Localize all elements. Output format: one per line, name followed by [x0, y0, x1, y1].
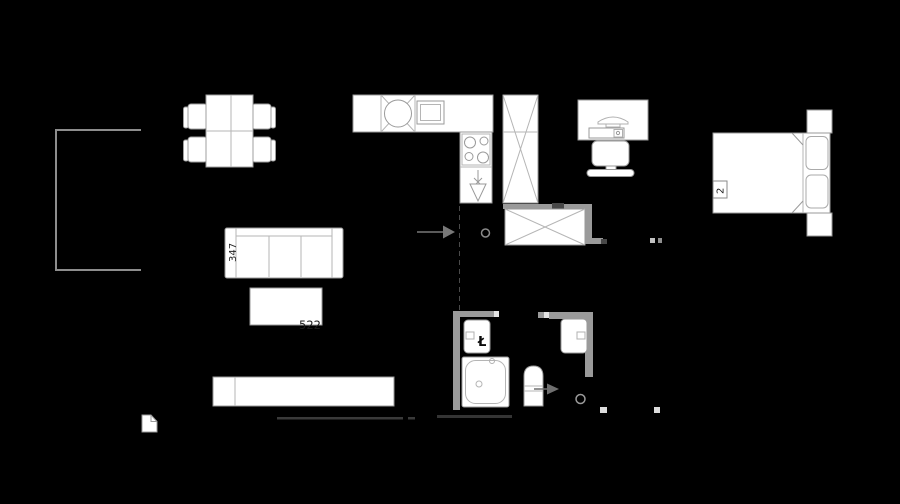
bath-wall	[549, 312, 587, 319]
bath-floor-line	[437, 415, 512, 418]
door-frame-mark	[650, 238, 655, 243]
kitchen-sink	[385, 100, 412, 127]
dining-chair	[252, 104, 271, 129]
bathroom-symbol-label: Ł	[477, 335, 486, 350]
nightstand	[807, 110, 832, 133]
hall-wall	[503, 204, 585, 209]
shower	[462, 357, 509, 407]
bath-wall-cap	[494, 311, 499, 317]
pillow	[806, 175, 828, 208]
floor-line	[408, 417, 415, 420]
washbasin	[561, 319, 587, 353]
hall-wall	[585, 238, 603, 244]
dining-chair	[252, 137, 271, 162]
bath-wall	[453, 311, 460, 410]
dining-chair	[188, 137, 207, 162]
bed-label: 2	[716, 188, 727, 194]
floor-line	[277, 417, 403, 420]
door-frame-mark	[658, 238, 662, 243]
background	[0, 0, 900, 504]
desk-chair-backrest	[587, 170, 634, 177]
door-frame-mark	[600, 407, 607, 413]
door-frame-mark	[654, 407, 660, 413]
sofa-dimension-label: 347	[228, 243, 239, 262]
hall-wall-stub	[601, 239, 607, 244]
desk-chair-seat	[592, 141, 629, 166]
floor-plan-svg: 2 347 522	[0, 0, 900, 504]
tv-bench	[213, 377, 394, 406]
bath-wall-cap	[544, 312, 549, 318]
nightstand	[807, 213, 832, 236]
coffee-table-dimension-label: 522	[299, 318, 321, 332]
dining-chair	[188, 104, 207, 129]
floor-plan-stage: 2 347 522	[0, 0, 900, 504]
bath-wall	[460, 311, 494, 317]
pillow	[806, 137, 828, 170]
bath-wall-stub	[538, 312, 544, 318]
